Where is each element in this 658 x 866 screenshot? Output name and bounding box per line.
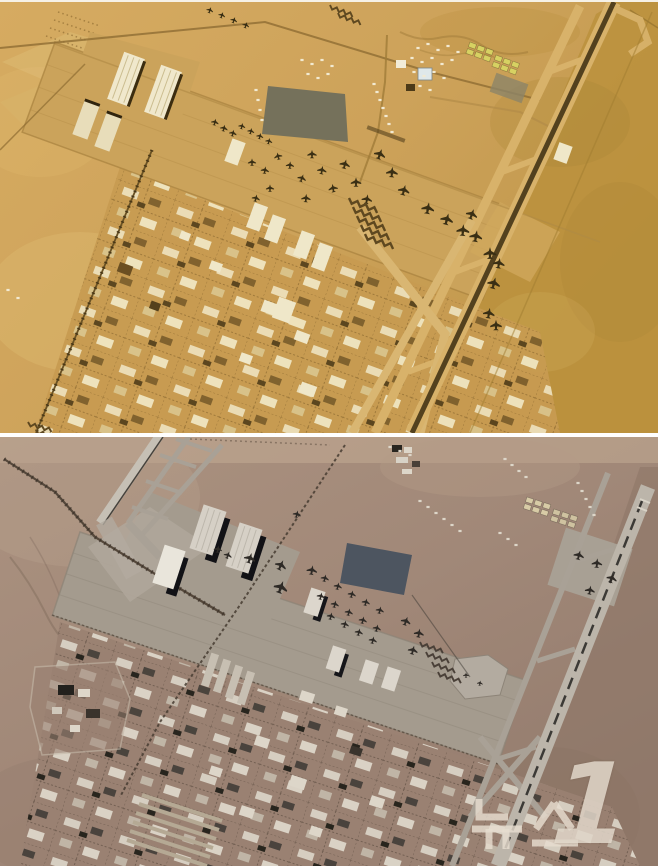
small-structure (387, 123, 390, 125)
small-structure (458, 530, 461, 532)
small-structure (450, 524, 453, 526)
small-structure (503, 458, 506, 460)
small-structure (300, 59, 303, 61)
small-structure (422, 75, 425, 77)
small-structure (456, 51, 459, 53)
small-structure (378, 99, 381, 101)
small-structure (375, 91, 378, 93)
satellite-photo-top (0, 2, 658, 433)
small-structure (384, 115, 387, 117)
small-structure (320, 59, 323, 61)
walled-compound (30, 662, 130, 755)
small-structure (372, 83, 375, 85)
small-structure (420, 61, 423, 63)
small-structure (260, 119, 263, 121)
small-structure (428, 89, 431, 91)
small-structure (326, 73, 329, 75)
small-structure (592, 514, 595, 516)
small-structure (398, 450, 401, 452)
satellite-image-after: 1 (0, 437, 658, 866)
small-structure (426, 506, 429, 508)
small-structure (498, 532, 501, 534)
small-structure (258, 109, 261, 111)
small-structure (418, 85, 421, 87)
small-structure (381, 107, 384, 109)
small-structure (576, 482, 579, 484)
small-structure (442, 77, 445, 79)
small-structure (408, 454, 411, 456)
small-structure (588, 506, 591, 508)
small-structure (410, 57, 413, 59)
small-structure (310, 63, 313, 65)
small-structure (434, 512, 437, 514)
small-structure (440, 63, 443, 65)
small-structure (517, 470, 520, 472)
small-structure (584, 498, 587, 500)
small-structure (16, 297, 19, 299)
small-structure (306, 73, 309, 75)
small-structure (412, 71, 415, 73)
small-structure (390, 131, 393, 133)
small-structure (432, 71, 435, 73)
small-structure (430, 57, 433, 59)
small-structure (254, 89, 257, 91)
small-structure (510, 464, 513, 466)
small-structure (256, 99, 259, 101)
small-structure (6, 289, 9, 291)
small-structure (450, 59, 453, 61)
small-structure (426, 43, 429, 45)
small-structure (506, 538, 509, 540)
small-structure (388, 446, 391, 448)
small-structure (580, 490, 583, 492)
small-structure (524, 476, 527, 478)
satellite-image-before (0, 2, 658, 433)
small-structure (446, 45, 449, 47)
satellite-comparison: 1 (0, 0, 658, 866)
small-structure (436, 49, 439, 51)
small-structure (442, 518, 445, 520)
small-structure (418, 500, 421, 502)
small-structure (330, 65, 333, 67)
satellite-photo-bottom (0, 437, 658, 866)
small-structure (316, 77, 319, 79)
small-structure (514, 544, 517, 546)
dark-gravel-patch-top (262, 86, 348, 142)
small-structure (416, 47, 419, 49)
